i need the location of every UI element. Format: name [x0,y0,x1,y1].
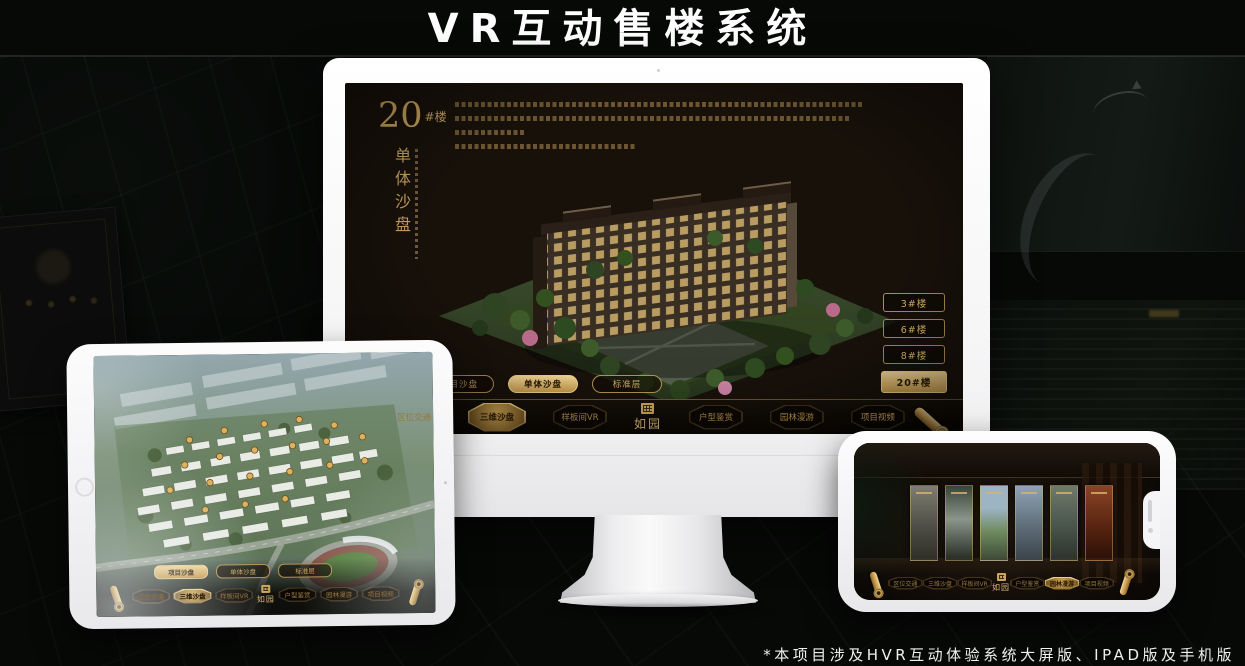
monitor-shadow [520,602,800,624]
scroll-icon[interactable] [408,581,422,606]
project-logo: 如园 [257,585,275,605]
nav-item-garden-tour[interactable]: 园林漫游 [320,586,358,601]
nav-item-3d-sandtable[interactable]: 三维沙盘 [923,577,958,590]
subtab-standard-floor[interactable]: 标准层 [592,375,662,393]
camera-icon [444,481,447,484]
camera-icon [1148,528,1153,533]
seal-icon [997,573,1006,581]
scroll-icon[interactable] [869,571,883,596]
nav-item-showroom-vr[interactable]: 样板间VR [957,577,992,590]
phone-screen: 区位交通 三维沙盘 样板间VR 如园 户型鉴赏 园林漫游 项目视频 [854,443,1160,600]
nav-item-project-video[interactable]: 项目视频 [362,586,400,601]
nav-item-floorplans[interactable]: 户型鉴赏 [1010,577,1045,590]
vertical-english-caption [415,149,418,259]
panel-caption [916,492,932,494]
page-title: VR互动售楼系统 [0,0,1245,56]
building-button-3[interactable]: 3#楼 [883,293,945,312]
background-river [1001,137,1142,302]
gallery-panel[interactable] [910,485,938,561]
nav-item-location[interactable]: 区位交通 [888,577,923,590]
building-button-6[interactable]: 6#楼 [883,319,945,338]
project-logo: 如园 [634,403,662,432]
panel-caption [1091,492,1107,494]
phone-device: 区位交通 三维沙盘 样板间VR 如园 户型鉴赏 园林漫游 项目视频 [838,431,1176,612]
gallery-panel[interactable] [980,485,1008,561]
nav-item-garden-tour-selected[interactable]: 园林漫游 [1045,577,1080,590]
background-gold-logo-glow [1149,310,1179,317]
monitor-stand [556,515,760,603]
sandtable-subtabs: 项目沙盘 单体沙盘 标准层 [424,375,662,393]
scroll-icon[interactable] [109,584,123,609]
intro-text-line [455,102,863,107]
nav-item-project-video[interactable]: 项目视频 [1079,577,1114,590]
seal-icon [641,403,654,414]
gallery-panel[interactable] [1050,485,1078,561]
curved-arrow-decoration [1090,86,1152,131]
gallery-panel[interactable] [1085,485,1113,561]
phone-notch [1143,491,1160,549]
panel-caption [1021,492,1037,494]
speaker-slit-icon [1148,500,1152,522]
subtab-single-sandtable-selected[interactable]: 单体沙盘 [508,375,578,393]
building-number: 20 [378,96,423,136]
footnote: *本项目涉及HVR互动体验系统大屏版、IPAD版及手机版 [763,644,1235,665]
building-heading: 20#楼 [378,98,447,134]
building-button-8[interactable]: 8#楼 [883,345,945,364]
nav-item-showroom-vr[interactable]: 样板间VR [553,405,607,430]
nav-item-garden-tour[interactable]: 园林漫游 [770,405,824,430]
tablet-subtabs: 项目沙盘 单体沙盘 标准层 [154,563,332,579]
nav-item-3d-sandtable-selected[interactable]: 三维沙盘 [468,403,526,432]
tablet-screen: 项目沙盘 单体沙盘 标准层 区位交通 三维沙盘 样板间VR 如园 户型鉴赏 园林… [93,352,435,617]
home-button-icon[interactable] [75,477,94,496]
building-selector: 3#楼 6#楼 8#楼 20#楼 [881,293,947,393]
project-logo: 如园 [992,573,1010,593]
panel-caption [1056,492,1072,494]
promo-poster: VR互动售楼系统 20#楼 单体沙盘 [0,0,1245,666]
intro-text-line [455,116,851,121]
panel-caption [986,492,1002,494]
nav-item-location[interactable]: 区位交通 [132,589,170,604]
building-number-suffix: #楼 [425,110,447,124]
nav-item-showroom-vr[interactable]: 样板间VR [215,588,253,603]
scene-gallery [910,485,1113,561]
background-photo-top-right [987,56,1245,252]
seal-icon [261,585,270,593]
intro-text-line [455,130,524,135]
subtab-project-sandtable-selected[interactable]: 项目沙盘 [154,565,208,580]
nav-item-3d-sandtable-selected[interactable]: 三维沙盘 [174,588,212,603]
panel-caption [951,492,967,494]
tablet-navbar: 区位交通 三维沙盘 样板间VR 如园 户型鉴赏 园林漫游 项目视频 [104,579,427,611]
subtab-single-sandtable[interactable]: 单体沙盘 [216,564,270,579]
webcam-icon [657,69,660,72]
tablet-device: 项目沙盘 单体沙盘 标准层 区位交通 三维沙盘 样板间VR 如园 户型鉴赏 园林… [66,340,455,630]
gallery-panel[interactable] [1015,485,1043,561]
scroll-icon[interactable] [1119,571,1133,596]
nav-item-floorplans[interactable]: 户型鉴赏 [689,405,743,430]
subtab-standard-floor[interactable]: 标准层 [278,563,332,578]
nav-item-floorplans[interactable]: 户型鉴赏 [278,587,316,602]
gallery-panel[interactable] [945,485,973,561]
building-button-20-selected[interactable]: 20#楼 [881,371,947,393]
phone-navbar: 区位交通 三维沙盘 样板间VR 如园 户型鉴赏 园林漫游 项目视频 [864,571,1138,595]
nav-item-project-video[interactable]: 项目视频 [851,405,905,430]
vertical-section-title: 单体沙盘 [389,147,413,239]
